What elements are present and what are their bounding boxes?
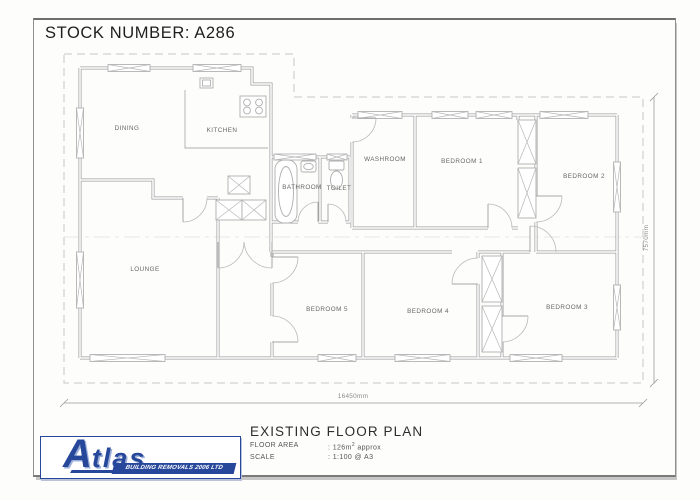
- drawing-title: EXISTING FLOOR PLAN: [250, 424, 423, 439]
- page-border-frame: [33, 18, 676, 477]
- floor-area-value: : 126m2 approx: [328, 442, 381, 451]
- scanned-page: DINING KITCHEN BATHROOM TOILET WASHROOM …: [0, 0, 700, 500]
- atlas-logo: Atlas BUILDING REMOVALS 2006 LTD: [40, 436, 241, 479]
- atlas-logo-tagline: BUILDING REMOVALS 2006 LTD: [112, 463, 237, 474]
- floor-area-label: FLOOR AREA: [250, 442, 328, 451]
- title-block: EXISTING FLOOR PLAN FLOOR AREA : 126m2 a…: [250, 424, 423, 461]
- stock-number-title: STOCK NUMBER: A286: [45, 24, 235, 43]
- scale-label: SCALE: [250, 454, 328, 461]
- floor-area-row: FLOOR AREA : 126m2 approx: [250, 442, 423, 451]
- scale-value: : 1:100 @ A3: [328, 454, 373, 461]
- scale-row: SCALE : 1:100 @ A3: [250, 454, 423, 461]
